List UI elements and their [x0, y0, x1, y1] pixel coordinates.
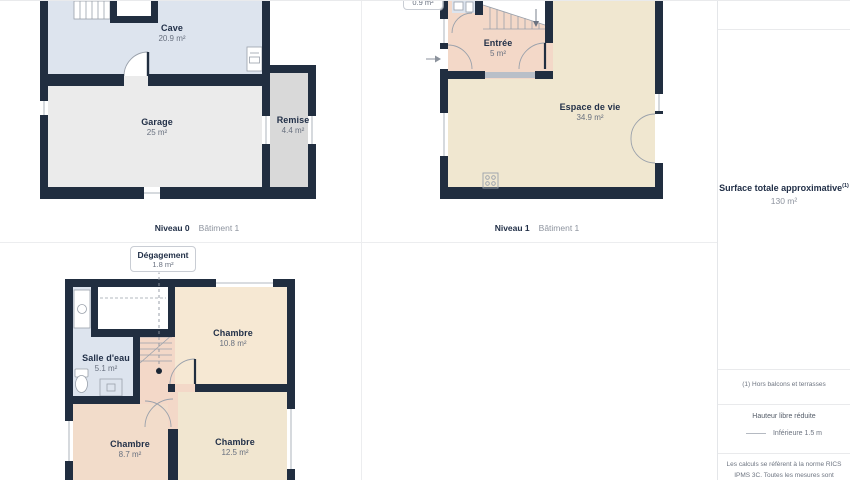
floorplan-niveau-1: 0.9 m² Entrée 5 m² Espace de vie 34.9 m²	[400, 1, 670, 201]
building-name: Bâtiment 1	[539, 223, 580, 233]
sidebar-divider	[718, 404, 850, 405]
disclaimer-line-1: Les calculs se réfèrent à la norme RICS	[724, 460, 844, 471]
legend-row: Inférieure 1.5 m	[718, 430, 850, 437]
entrance-arrow-icon	[426, 56, 441, 63]
void-room	[117, 1, 151, 16]
floorplan-niveau-0-drawing	[38, 1, 323, 201]
glass-partition	[485, 72, 535, 78]
room-chambre-10-8	[175, 287, 287, 384]
disclaimer-line-2: IPMS 3C. Toutes les mesures sont	[724, 471, 844, 480]
sidebar-divider	[718, 369, 850, 370]
callout-area: 0.9 m²	[408, 0, 438, 7]
sink-icon	[74, 290, 90, 328]
floorplan-niveau-0: Cave 20.9 m² Garage 25 m² Remise 4.4 m²	[38, 1, 323, 201]
level-name: Niveau 1	[495, 223, 530, 233]
total-surface-block: Surface totale approximative(1) 130 m²	[718, 181, 850, 207]
floorplan-niveau-2: Dégagement 1.8 m² Salle d'eau 5.1 m² Cha…	[60, 241, 300, 480]
disclaimer-text: Les calculs se réfèrent à la norme RICS …	[724, 460, 844, 480]
room-garage	[48, 76, 262, 187]
quadrant-divider-vertical	[361, 1, 362, 480]
room-remise	[270, 73, 308, 187]
door-opening	[175, 384, 195, 392]
stairs-icon	[74, 1, 110, 19]
room-espace	[553, 1, 663, 187]
summary-sidebar: Surface totale approximative(1) 130 m² (…	[718, 1, 850, 480]
floorplan-niveau-1-drawing	[400, 1, 670, 201]
panel-icon	[247, 47, 262, 71]
total-surface-title-text: Surface totale approximative	[719, 183, 842, 193]
level-label-niveau-1: Niveau 1Bâtiment 1	[437, 223, 637, 233]
degagement-callout: Dégagement 1.8 m²	[130, 246, 196, 272]
level-label-niveau-0: Niveau 0Bâtiment 1	[97, 223, 297, 233]
sidebar-divider	[718, 453, 850, 454]
door-opening	[168, 392, 178, 429]
callout-name: Dégagement	[135, 250, 191, 260]
floorplan-viewer: Cave 20.9 m² Garage 25 m² Remise 4.4 m² …	[0, 0, 850, 480]
low-headroom-area	[98, 287, 168, 329]
toilet-icon	[75, 369, 88, 393]
room-chambre-12-5	[178, 392, 287, 480]
total-surface-title: Surface totale approximative(1)	[718, 181, 850, 194]
floorplan-niveau-2-drawing	[60, 241, 300, 480]
level-name: Niveau 0	[155, 223, 190, 233]
sidebar-divider	[718, 29, 850, 30]
area-callout: 0.9 m²	[403, 0, 443, 10]
room-chambre-8-7	[73, 404, 168, 480]
legend-block: Hauteur libre réduite Inférieure 1.5 m	[718, 412, 850, 437]
total-surface-footnote-ref: (1)	[842, 183, 849, 189]
room-espace	[448, 79, 558, 187]
building-name: Bâtiment 1	[199, 223, 240, 233]
legend-item-label: Inférieure 1.5 m	[773, 430, 822, 437]
callout-area: 1.8 m²	[135, 260, 191, 269]
legend-title: Hauteur libre réduite	[718, 412, 850, 421]
total-surface-value: 130 m²	[718, 196, 850, 207]
footnote-text: (1) Hors balcons et terrasses	[718, 381, 850, 388]
dashed-line-icon	[746, 433, 766, 434]
